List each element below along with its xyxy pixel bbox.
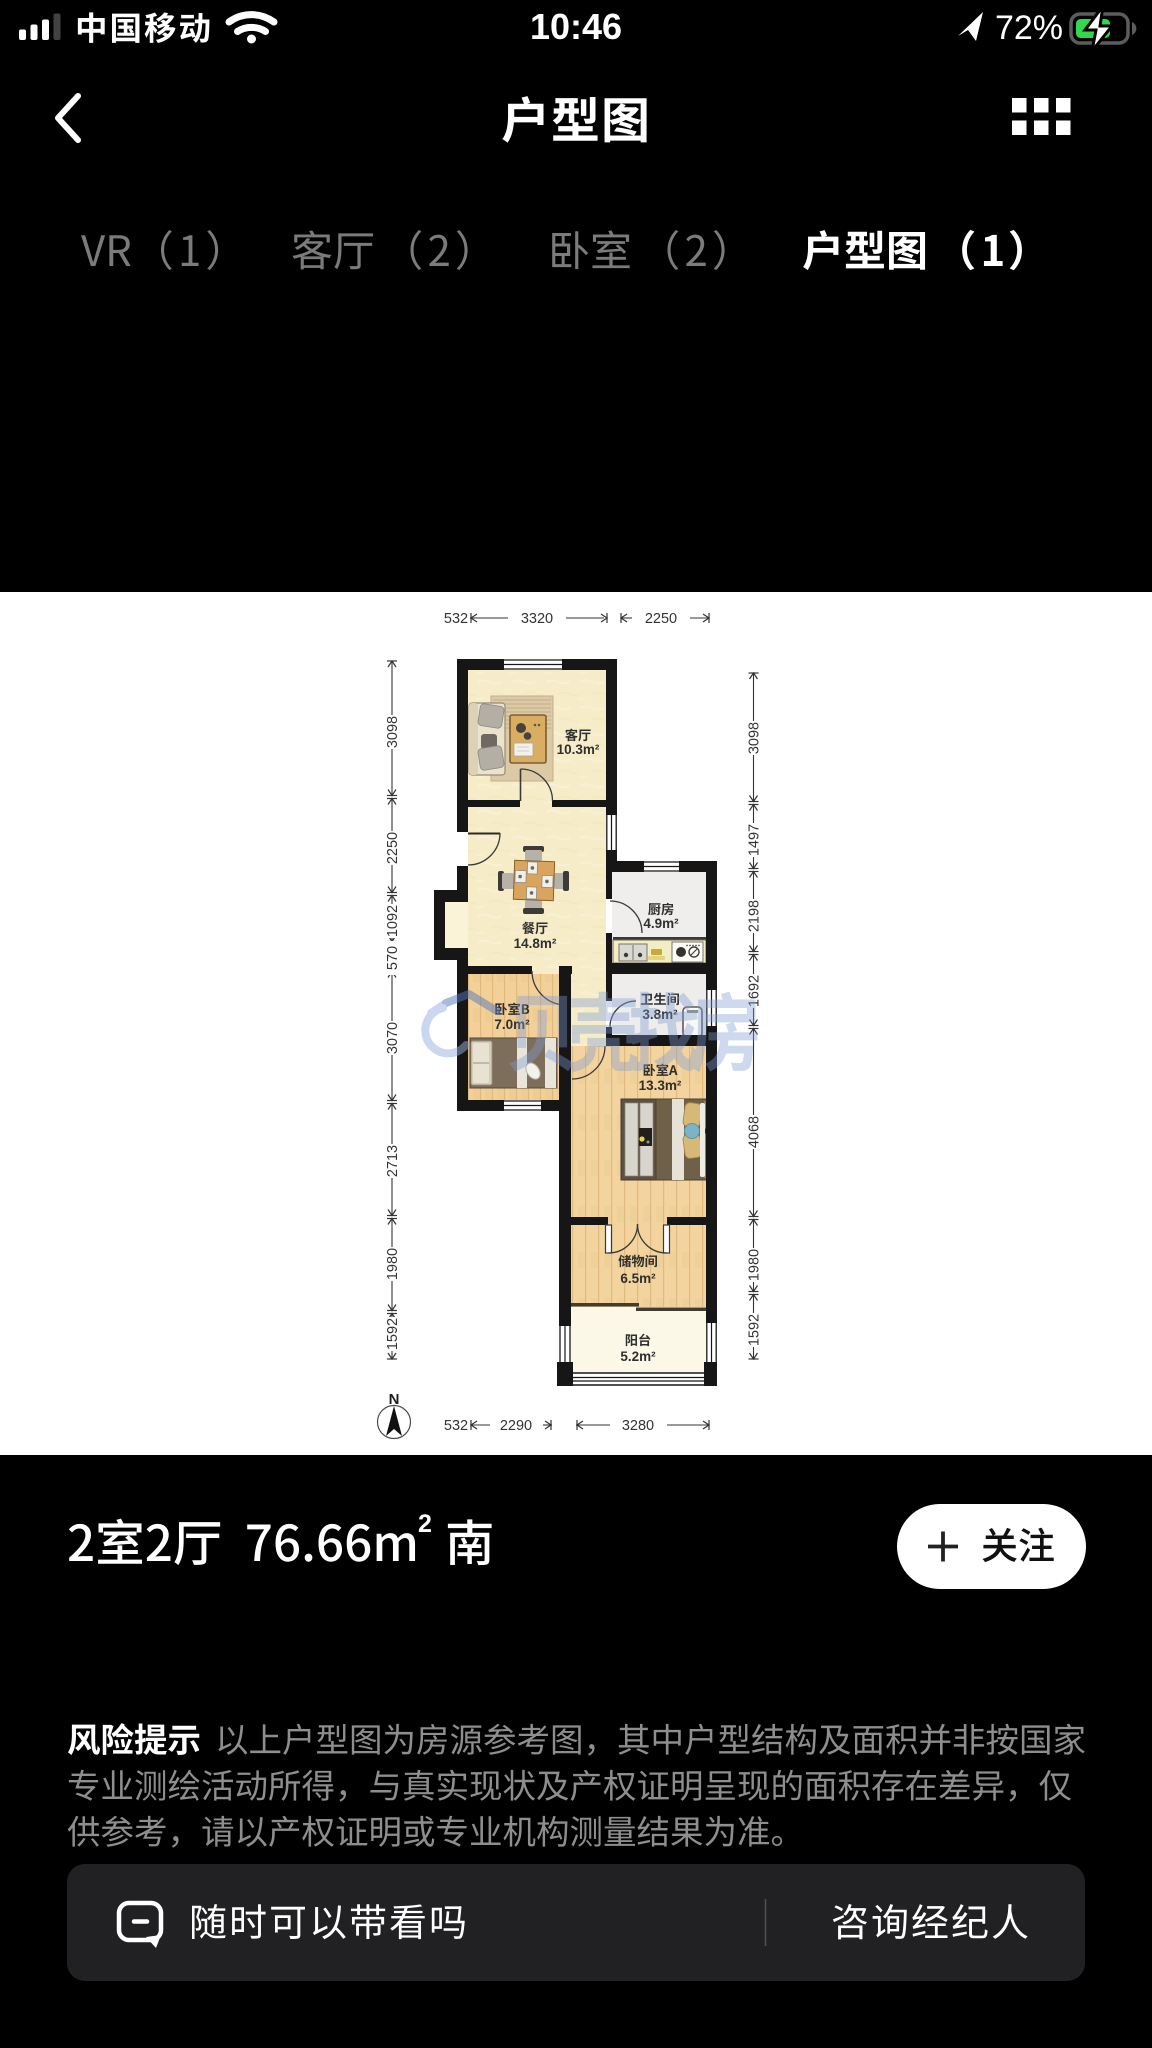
svg-text:2713: 2713 bbox=[385, 1145, 401, 1177]
svg-text:2290: 2290 bbox=[500, 1418, 532, 1434]
svg-text:72%: 72% bbox=[995, 9, 1063, 47]
svg-text:3070: 3070 bbox=[385, 1022, 401, 1054]
svg-text:1092: 1092 bbox=[385, 905, 401, 937]
svg-text:1980: 1980 bbox=[747, 1249, 763, 1281]
svg-text:1980: 1980 bbox=[385, 1248, 401, 1280]
svg-text:532: 532 bbox=[444, 611, 468, 627]
svg-text:1592: 1592 bbox=[385, 1318, 401, 1350]
svg-text:1497: 1497 bbox=[747, 824, 763, 856]
svg-text:3098: 3098 bbox=[747, 722, 763, 754]
svg-text:10:46: 10:46 bbox=[530, 6, 622, 47]
svg-text:570: 570 bbox=[385, 946, 401, 970]
svg-text:3098: 3098 bbox=[385, 716, 401, 748]
svg-text:2250: 2250 bbox=[385, 832, 401, 864]
svg-text:6.5m²: 6.5m² bbox=[620, 1271, 656, 1286]
svg-text:4068: 4068 bbox=[747, 1116, 763, 1148]
svg-text:3280: 3280 bbox=[622, 1418, 654, 1434]
svg-text:2250: 2250 bbox=[645, 611, 677, 627]
svg-text:10.3m²: 10.3m² bbox=[557, 742, 600, 757]
svg-text:2198: 2198 bbox=[747, 900, 763, 932]
svg-text:532: 532 bbox=[444, 1418, 468, 1434]
svg-text:5.2m²: 5.2m² bbox=[620, 1349, 656, 1364]
svg-text:4.9m²: 4.9m² bbox=[643, 916, 679, 931]
svg-text:3320: 3320 bbox=[521, 611, 553, 627]
svg-text:2: 2 bbox=[418, 1510, 432, 1538]
svg-text:1592: 1592 bbox=[747, 1314, 763, 1346]
svg-text:14.8m²: 14.8m² bbox=[514, 936, 557, 951]
svg-text:13.3m²: 13.3m² bbox=[639, 1078, 682, 1093]
